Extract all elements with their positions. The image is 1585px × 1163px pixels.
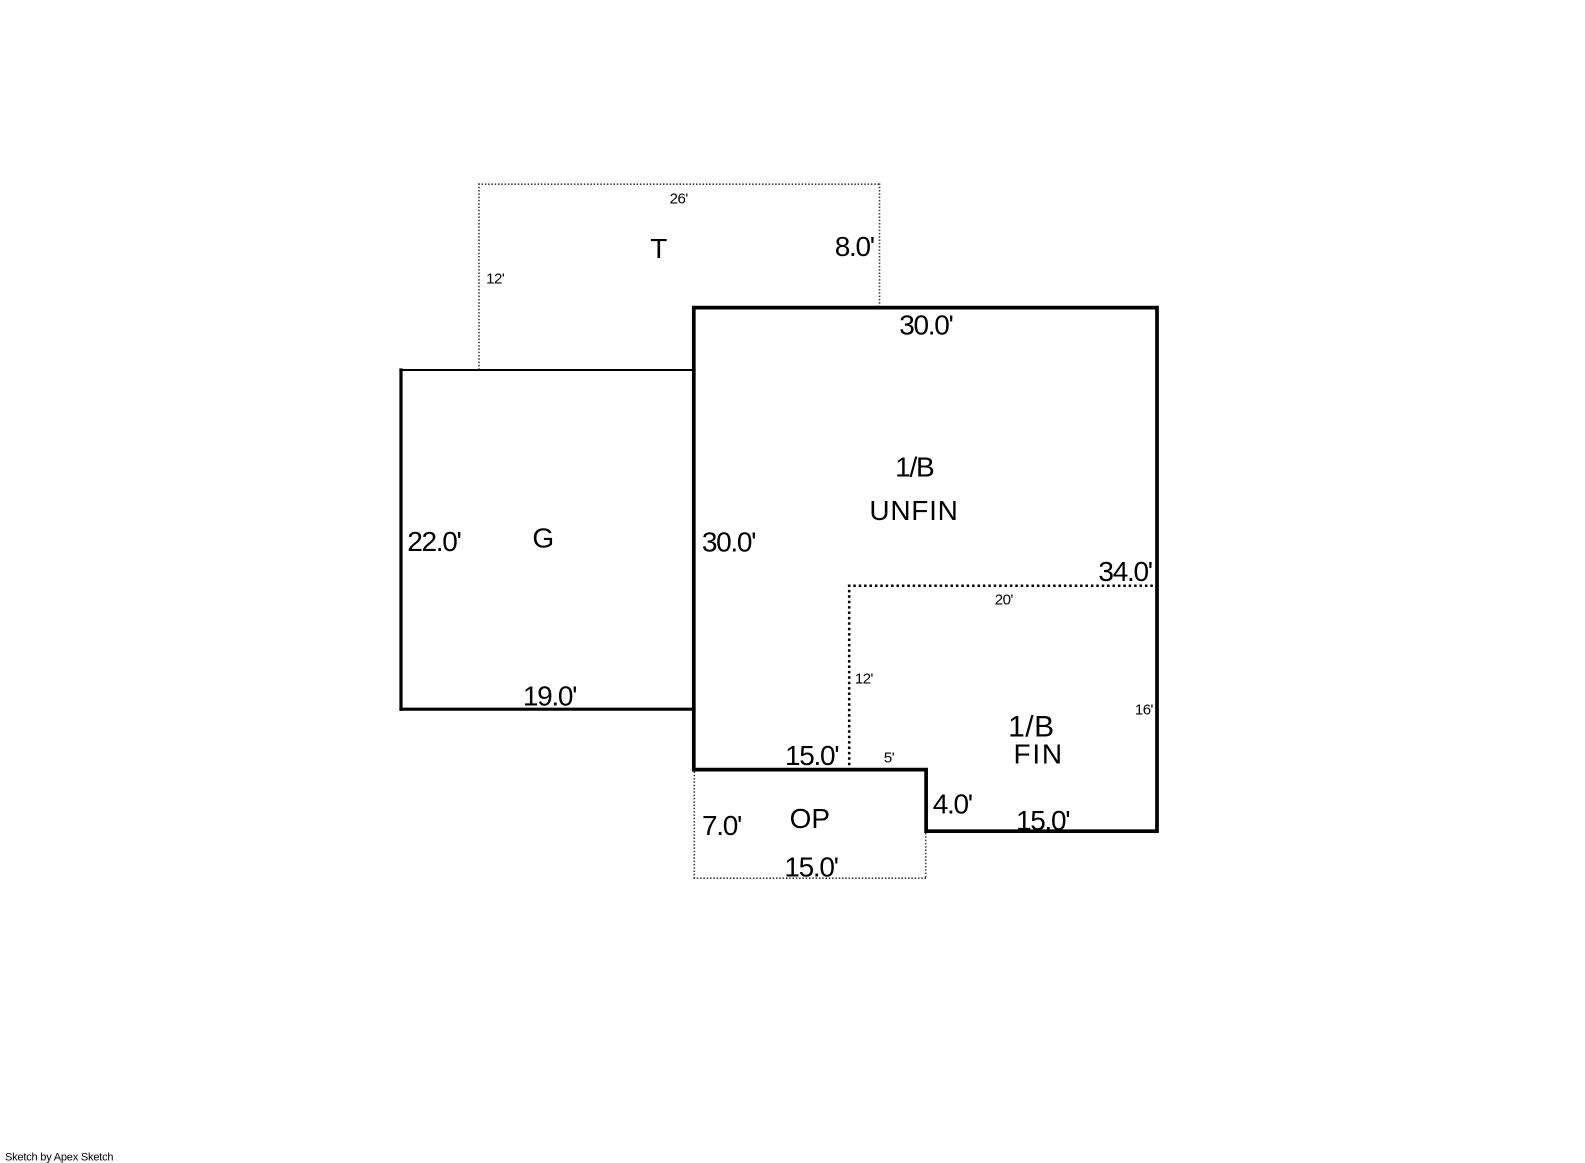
svg-text:T: T xyxy=(650,233,667,264)
svg-text:34.0': 34.0' xyxy=(1098,556,1151,587)
svg-text:FIN: FIN xyxy=(1013,738,1064,769)
svg-text:15.0': 15.0' xyxy=(1016,805,1069,836)
svg-text:OP: OP xyxy=(790,803,830,834)
svg-text:7.0': 7.0' xyxy=(702,810,741,841)
svg-text:UNFIN: UNFIN xyxy=(869,495,958,526)
svg-text:22.0': 22.0' xyxy=(407,526,460,557)
svg-text:4.0': 4.0' xyxy=(933,788,972,819)
svg-text:G: G xyxy=(532,523,554,554)
svg-text:20': 20' xyxy=(995,592,1014,609)
svg-text:15.0': 15.0' xyxy=(785,740,838,771)
svg-text:12': 12' xyxy=(486,270,505,287)
svg-text:12': 12' xyxy=(855,671,874,688)
svg-text:1/B: 1/B xyxy=(895,452,934,483)
svg-text:5': 5' xyxy=(884,749,895,766)
svg-text:26': 26' xyxy=(670,191,689,208)
svg-text:30.0': 30.0' xyxy=(899,310,952,341)
svg-text:16': 16' xyxy=(1135,702,1154,719)
svg-text:8.0': 8.0' xyxy=(835,231,874,262)
svg-text:15.0': 15.0' xyxy=(784,852,837,883)
svg-text:Sketch by Apex Sketch: Sketch by Apex Sketch xyxy=(5,1151,113,1163)
svg-text:19.0': 19.0' xyxy=(523,681,576,712)
svg-text:30.0': 30.0' xyxy=(702,527,755,558)
